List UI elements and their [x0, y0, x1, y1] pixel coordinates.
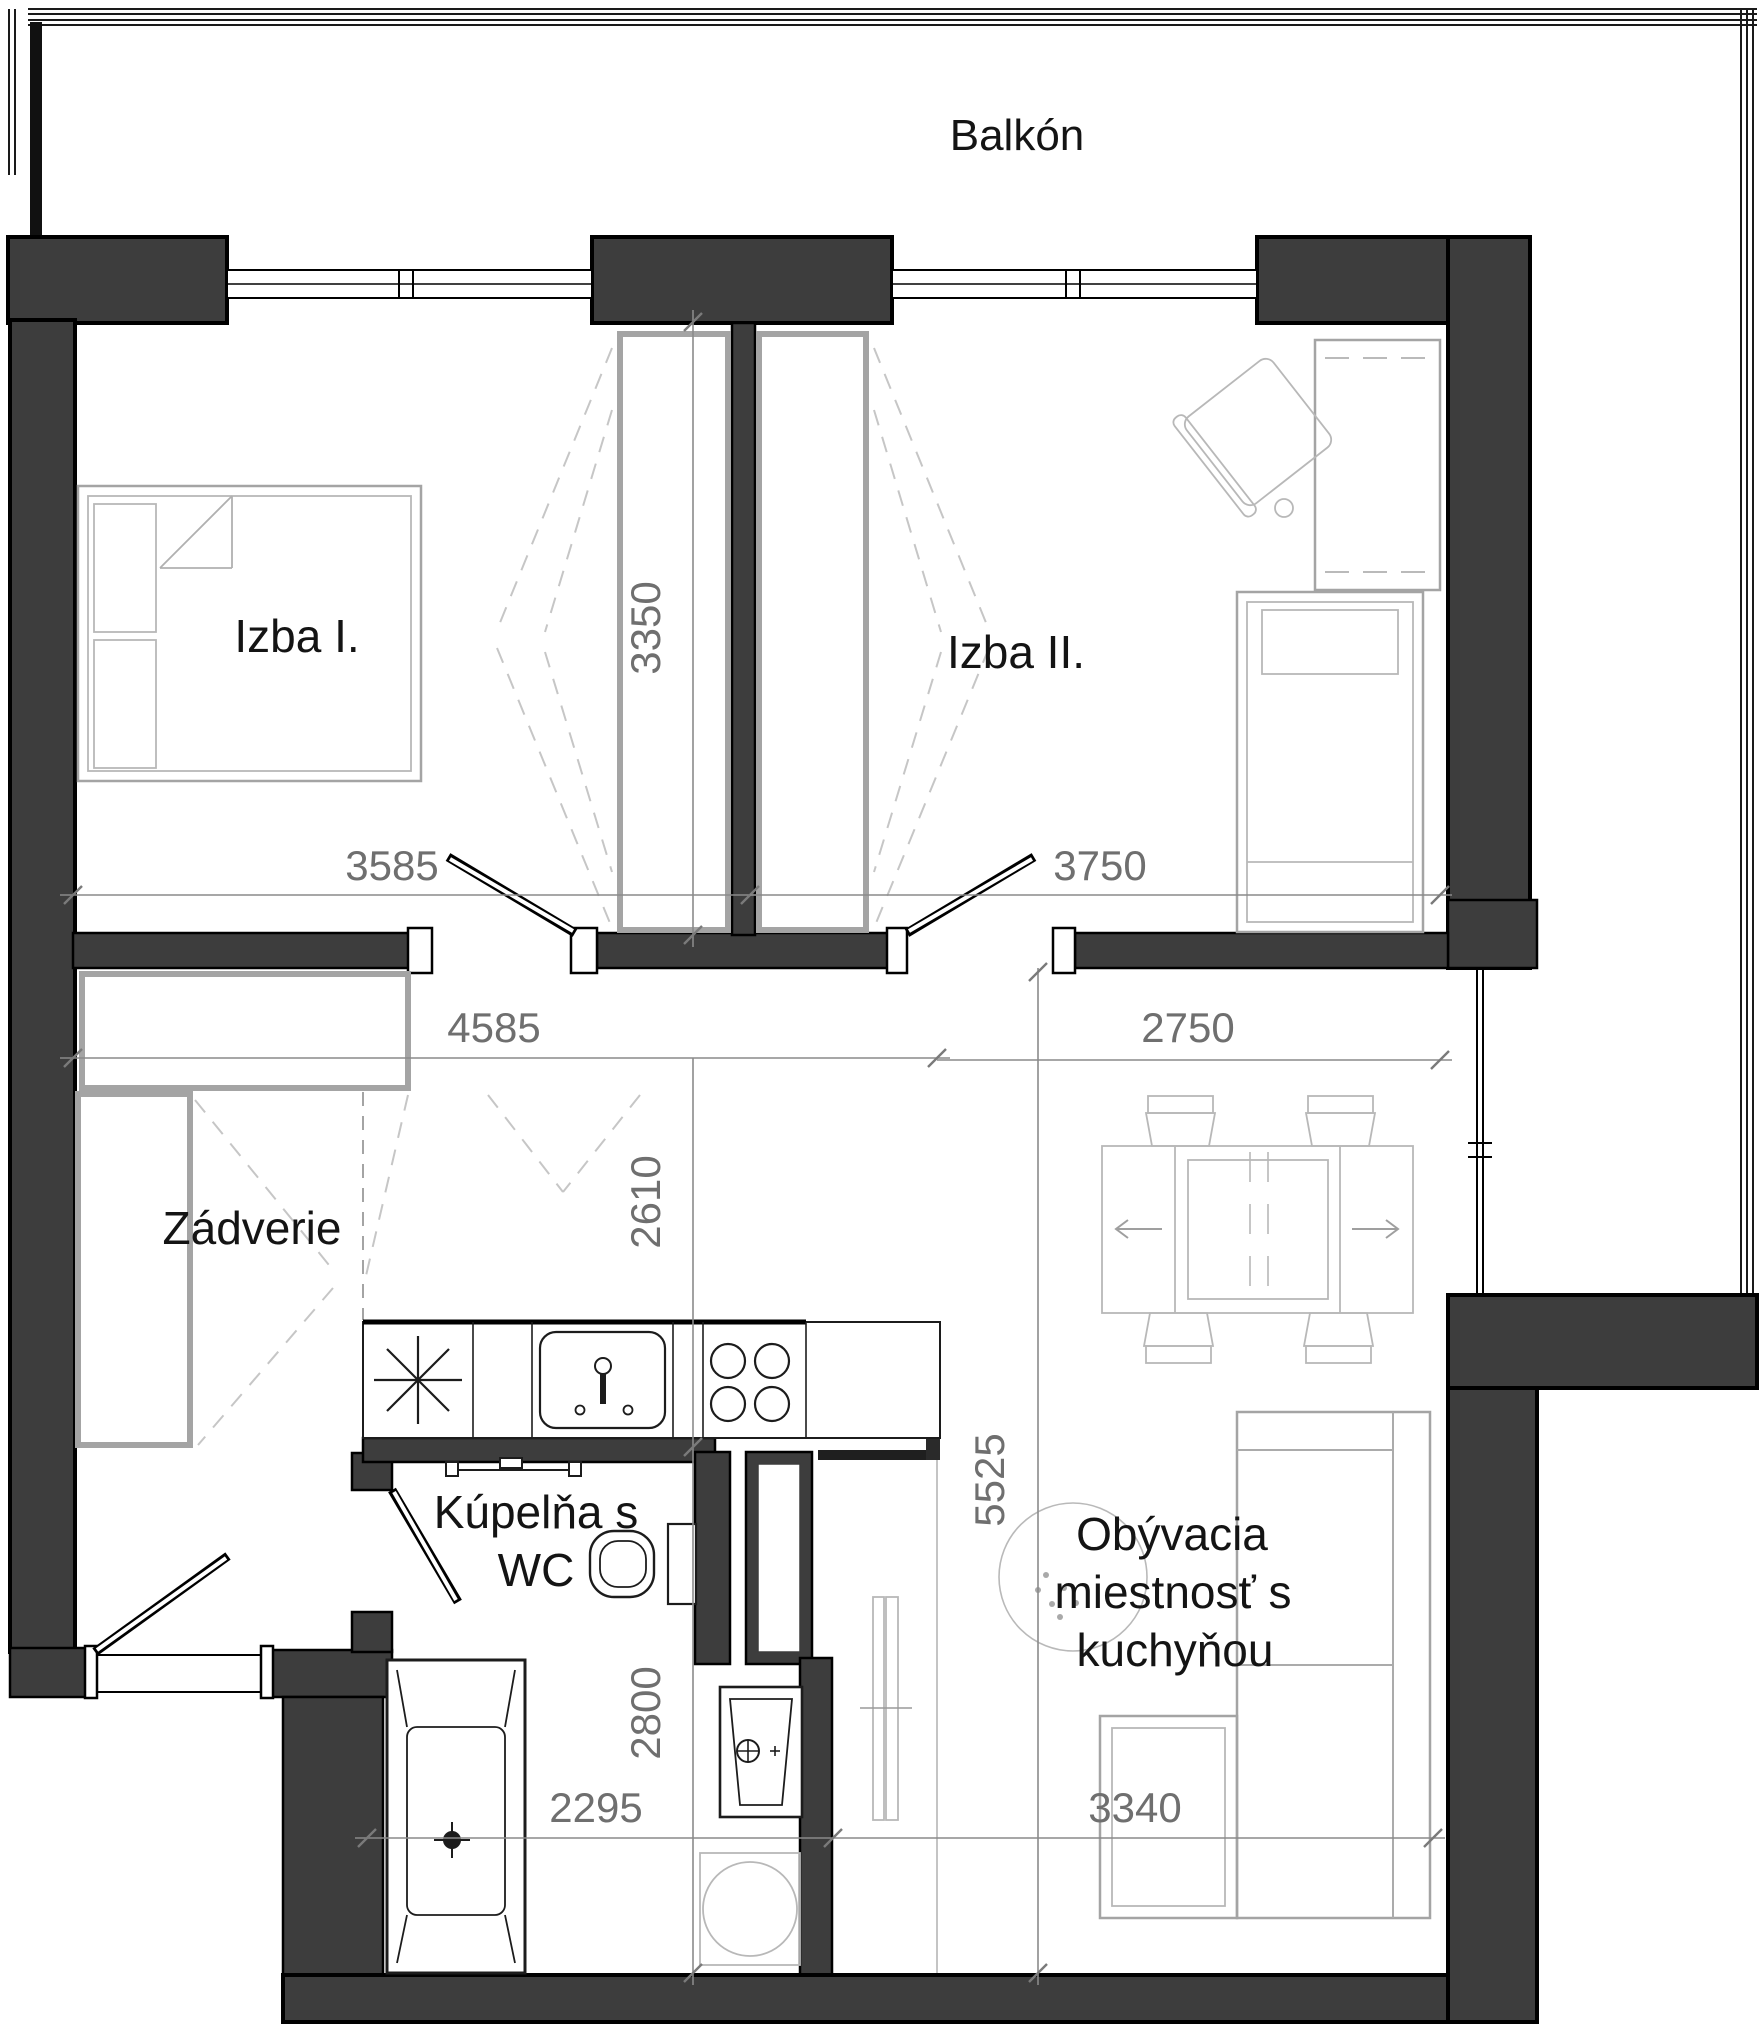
dimension-label-2295: 2295 [549, 1784, 642, 1831]
room-label-obyvacia-line2: miestnosť s [1054, 1566, 1291, 1618]
blanket-fold [160, 496, 232, 568]
door-jambs [85, 928, 1075, 1698]
room-label-zadverie: Zádverie [163, 1202, 342, 1254]
dimension-label-3585: 3585 [345, 842, 438, 889]
kitchen-sink-icon [540, 1332, 665, 1428]
single-bed-icon [1237, 592, 1423, 932]
wall-bathroom-right [695, 1452, 730, 1664]
dimension-label-2610: 2610 [622, 1155, 669, 1248]
pillow [94, 504, 156, 632]
wall-right-foot [1448, 900, 1537, 968]
balcony-label: Balkón [950, 111, 1085, 160]
wall-left-bottom-cap [10, 1648, 87, 1697]
wall-left [10, 320, 75, 1652]
bed-frame [1237, 592, 1423, 932]
kitchen-counter-icon [363, 1322, 940, 1438]
wall-right-upper [1448, 237, 1530, 968]
jamb [571, 928, 597, 973]
wardrobe-right [759, 334, 866, 930]
chair-seat [1181, 355, 1335, 509]
wall-top-middle [592, 237, 892, 323]
room-label-izba2: Izba II. [947, 626, 1085, 678]
dimension-label-3350: 3350 [622, 581, 669, 674]
door-entrance-core [97, 1558, 226, 1650]
jamb [261, 1646, 273, 1698]
entrance-threshold [95, 1655, 263, 1692]
window-izba2 [892, 270, 1257, 298]
dimension-label-3340: 3340 [1088, 1784, 1181, 1831]
desk-icon [1315, 340, 1440, 590]
wall-bedrooms-3 [1075, 933, 1448, 968]
balcony-door-glazing [1468, 968, 1492, 1295]
threshold [95, 1655, 263, 1692]
bed-inner [1247, 602, 1413, 922]
hall-cabinet-top [82, 974, 408, 1088]
jamb [1053, 928, 1075, 973]
room-label-izba1: Izba I. [234, 610, 359, 662]
wall-top-left [8, 237, 227, 323]
wall-bedrooms-1 [73, 933, 410, 968]
counter-edge-dark [818, 1450, 940, 1460]
room-label-kupelna-line1: Kúpelňa s [434, 1486, 639, 1538]
shaft-core [758, 1464, 800, 1652]
wall-wardrobe-stub [732, 323, 755, 935]
dining-table-icon [1102, 1146, 1413, 1313]
wall-bathroom-top [363, 1438, 715, 1462]
door-leaf-icon [95, 1556, 228, 1652]
wall-right-wing [1448, 1295, 1757, 1388]
washing-machine-icon [700, 1853, 800, 1965]
dimension-label-5525: 5525 [966, 1433, 1013, 1526]
wall-entrance [267, 1650, 392, 1697]
jamb [408, 928, 432, 973]
jamb [887, 928, 907, 973]
room-label-kupelna-line2: WC [498, 1544, 575, 1596]
hall-cabinet-tall [78, 1094, 190, 1445]
wall-bath-door-jamb-lower [352, 1612, 392, 1652]
dimension-label-4585: 4585 [447, 1004, 540, 1051]
walls [8, 237, 1757, 2022]
floor-plan-drawing: Balkón Izba I. Izba II. Zádverie Kúpelňa… [0, 0, 1763, 2032]
extension-arrows [1116, 1220, 1398, 1238]
wall-right-lower [1448, 1295, 1537, 2022]
jamb [85, 1646, 97, 1698]
pillow [94, 640, 156, 768]
tv-bench-icon [860, 1597, 912, 1820]
appliance-asterisk-icon [374, 1336, 462, 1424]
balcony-divider-wall [30, 22, 42, 238]
wall-bedrooms-2 [597, 933, 891, 968]
wall-bottom [283, 1975, 1537, 2022]
dimension-label-2750: 2750 [1141, 1004, 1234, 1051]
pillow [1262, 610, 1398, 674]
room-label-obyvacia-line1: Obývacia [1076, 1508, 1268, 1560]
chair-knob [1275, 499, 1293, 517]
wall-bath-living [800, 1658, 832, 1977]
dimension-label-2800: 2800 [622, 1666, 669, 1759]
bowl-inner [600, 1541, 646, 1587]
room-label-obyvacia-line3: kuchyňou [1077, 1624, 1274, 1676]
bathtub-icon [387, 1660, 525, 1973]
dimension-label-3750: 3750 [1053, 842, 1146, 889]
cistern [668, 1524, 696, 1604]
window-izba1 [227, 270, 592, 298]
desk-top [1315, 340, 1440, 590]
washbasin-icon [720, 1687, 802, 1817]
floor-plan-page: Balkón Izba I. Izba II. Zádverie Kúpelňa… [0, 0, 1763, 2032]
